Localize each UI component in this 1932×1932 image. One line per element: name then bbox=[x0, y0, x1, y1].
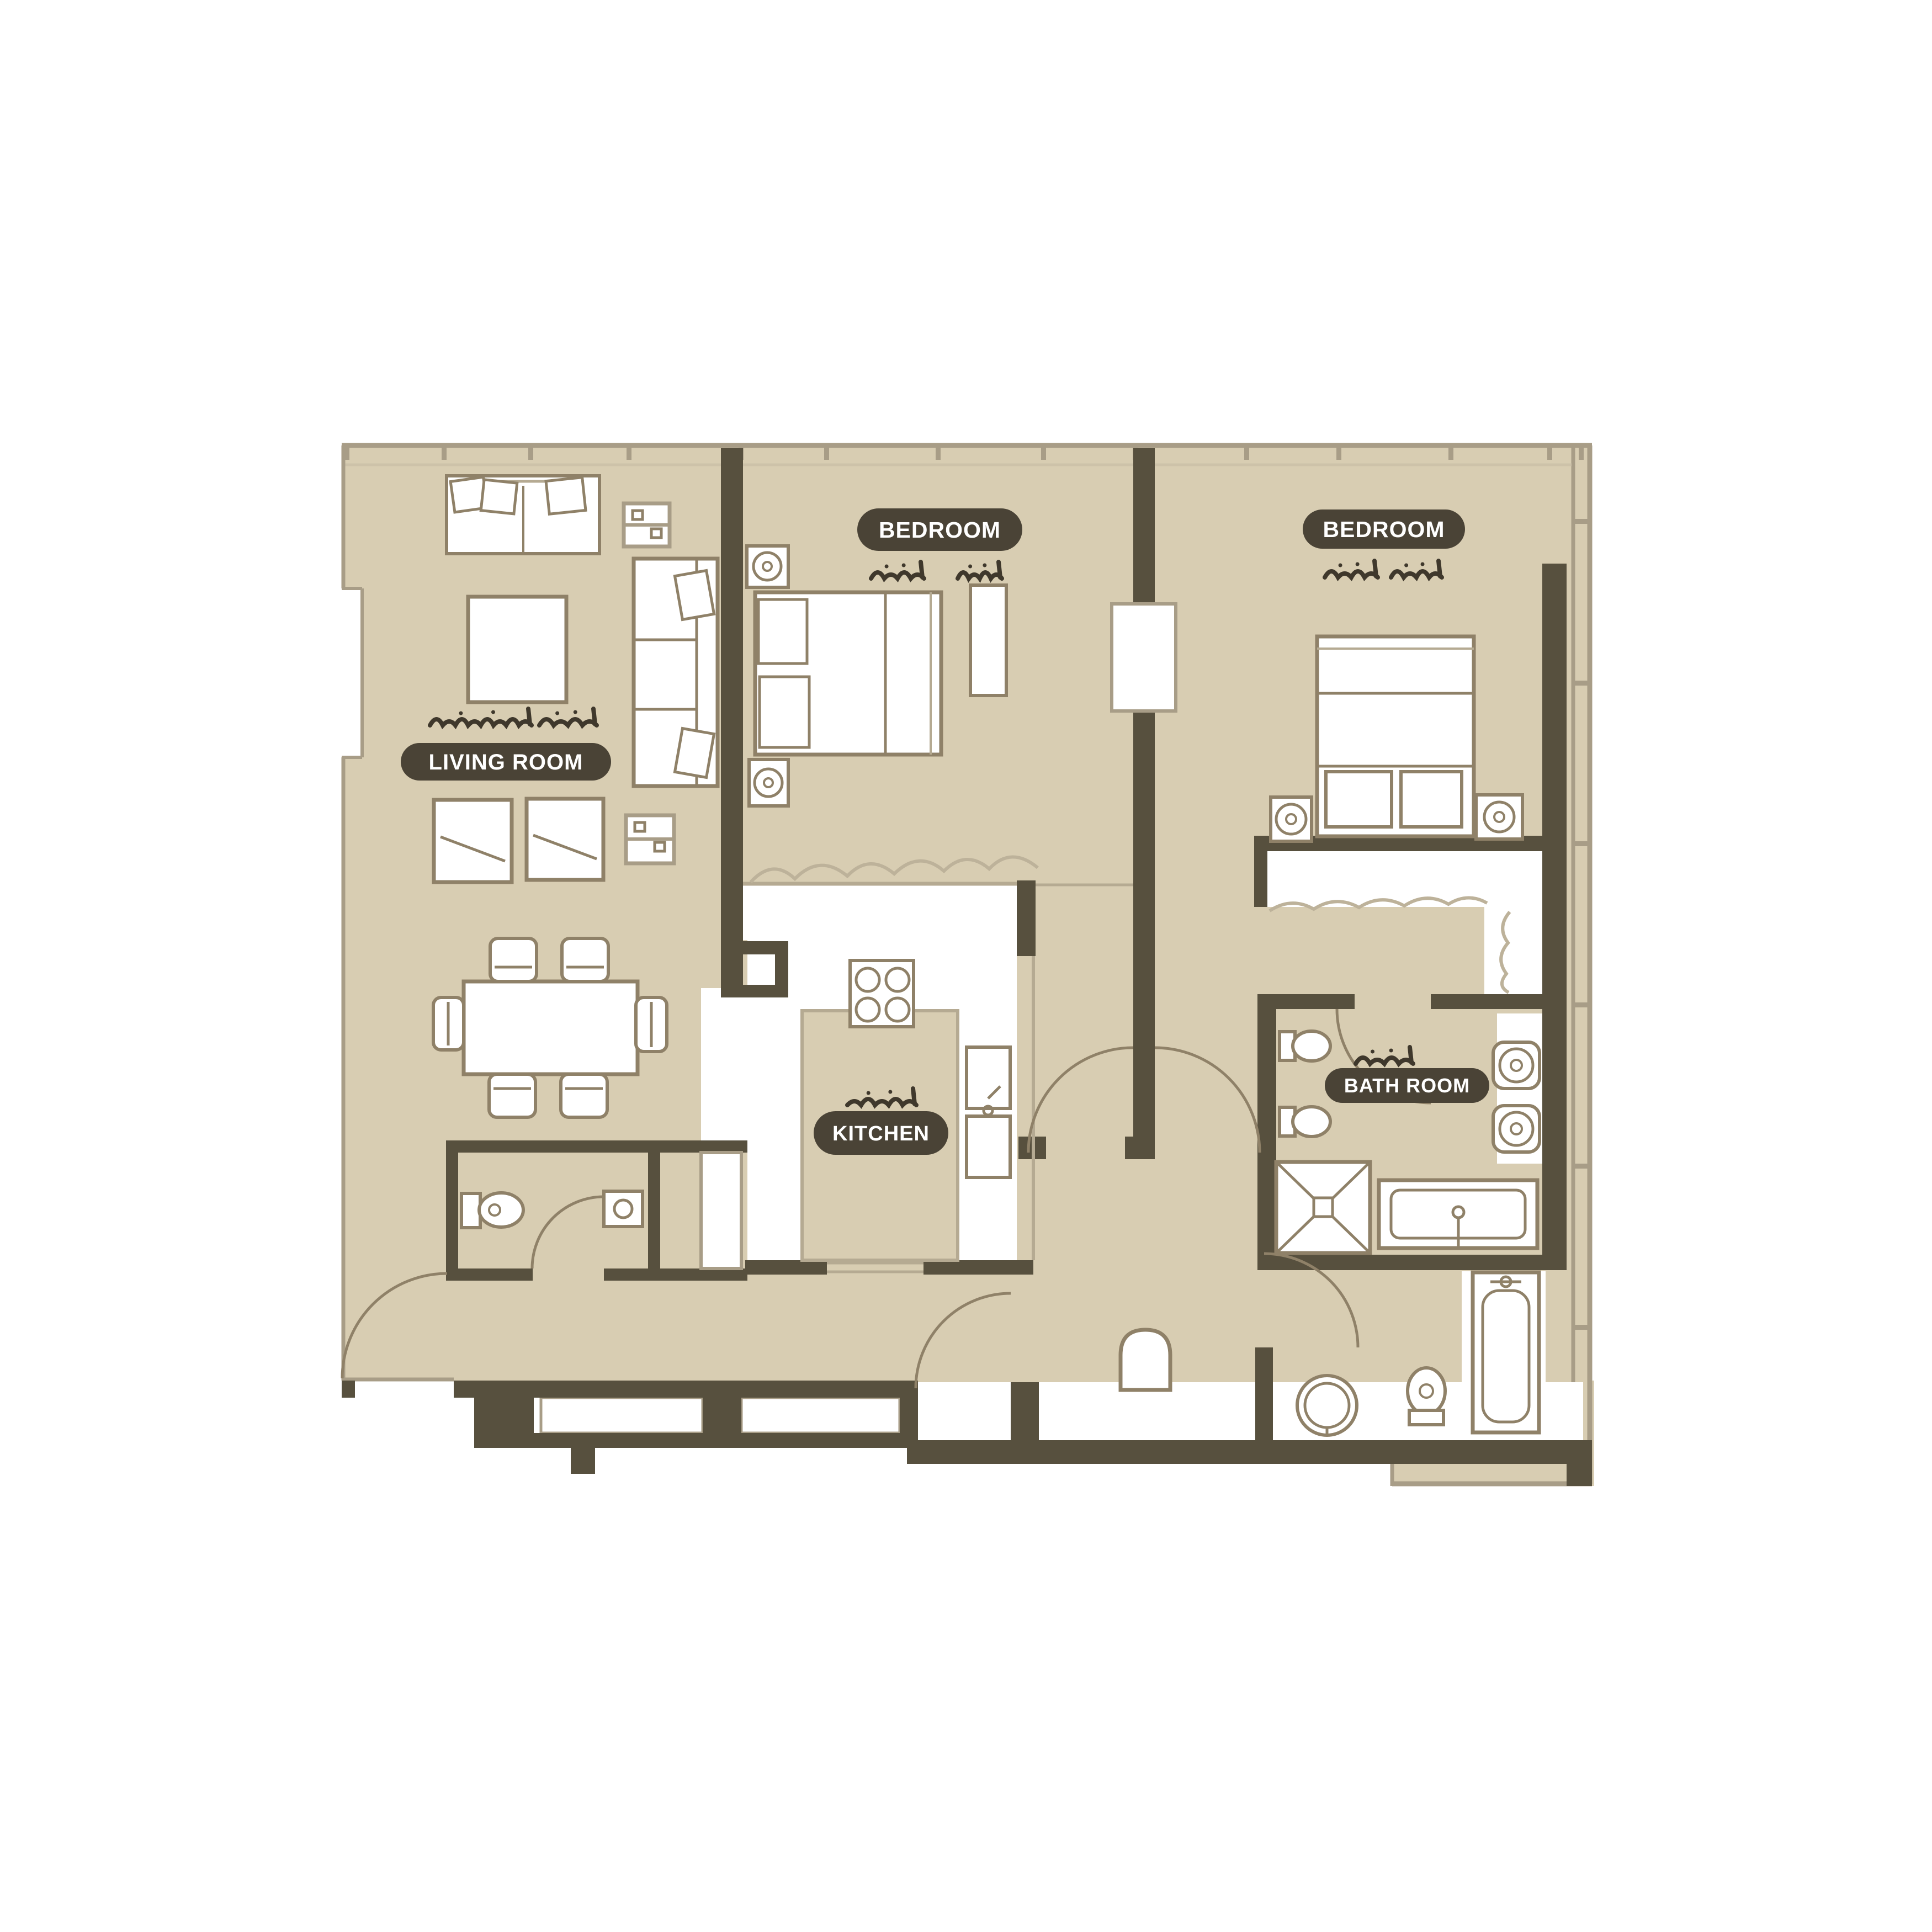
svg-text:KITCHEN: KITCHEN bbox=[832, 1122, 930, 1145]
svg-text:BEDROOM: BEDROOM bbox=[879, 517, 1001, 543]
svg-text:BEDROOM: BEDROOM bbox=[1323, 517, 1445, 542]
svg-text:BATH ROOM: BATH ROOM bbox=[1344, 1074, 1470, 1097]
svg-text:LIVING ROOM: LIVING ROOM bbox=[429, 750, 583, 774]
